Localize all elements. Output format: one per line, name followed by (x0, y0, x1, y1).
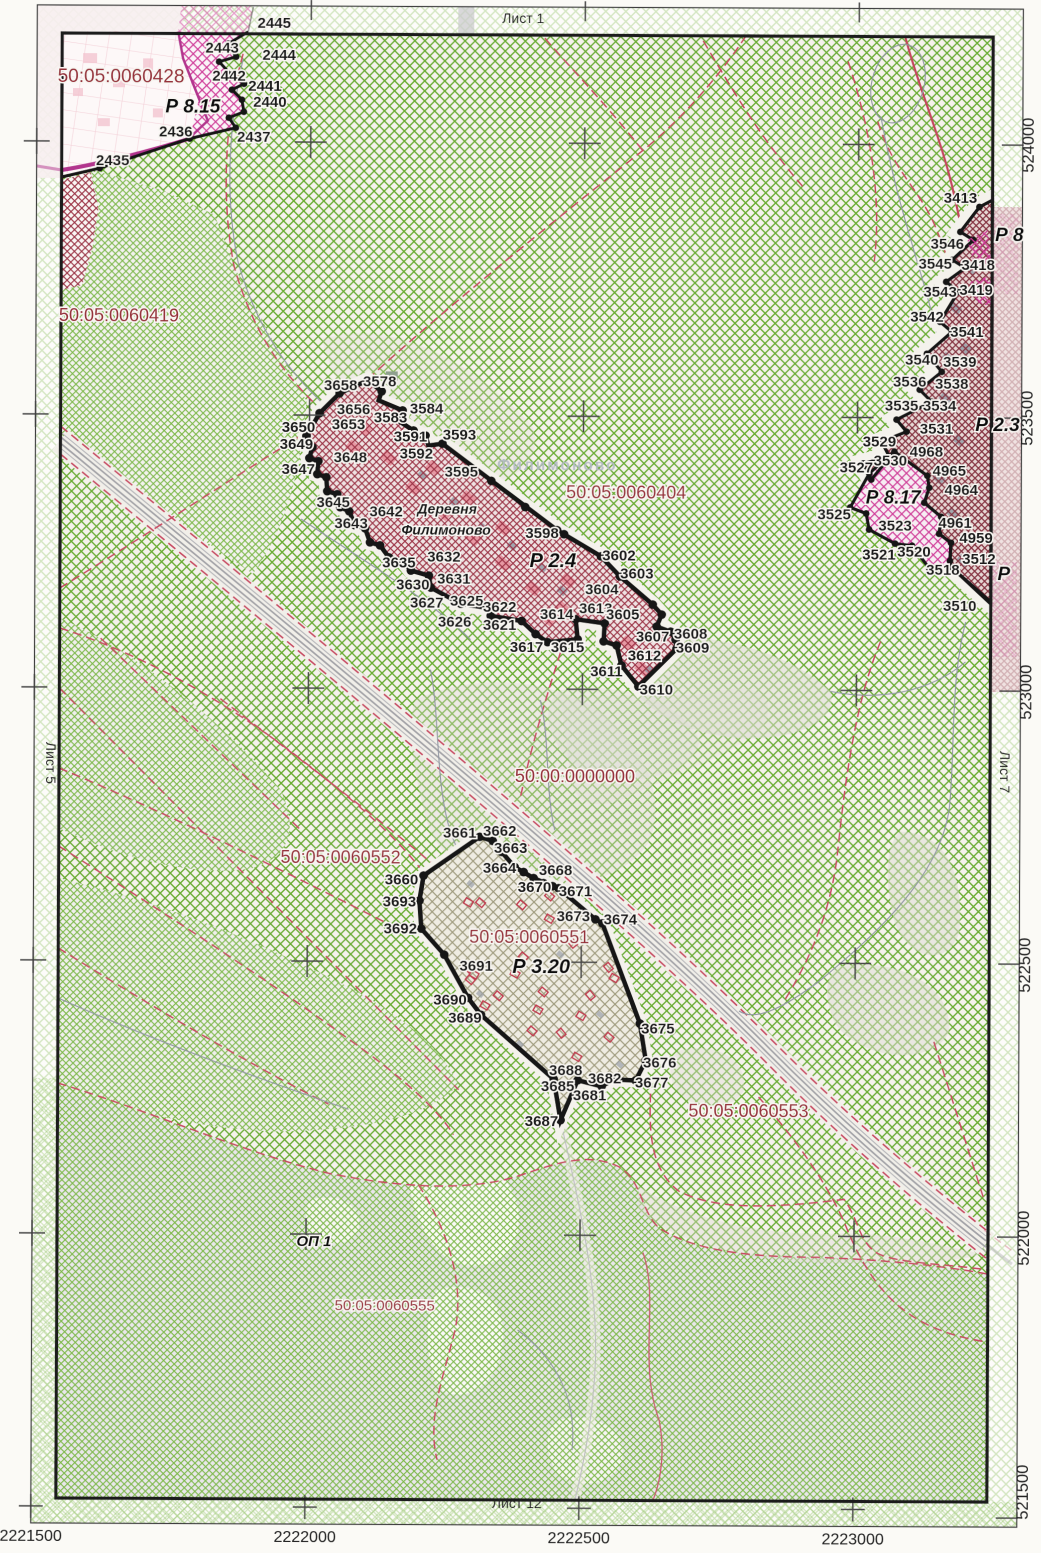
svg-text:3529: 3529 (863, 433, 896, 450)
svg-text:Р: Р (997, 564, 1010, 585)
svg-text:Лист 12: Лист 12 (492, 1495, 542, 1511)
svg-text:Лист 5: Лист 5 (43, 742, 59, 784)
svg-text:Лист 1: Лист 1 (502, 10, 544, 26)
svg-text:Лист 7: Лист 7 (997, 751, 1013, 793)
svg-text:3607: 3607 (636, 629, 669, 646)
svg-text:3681: 3681 (573, 1087, 606, 1104)
svg-text:522500: 522500 (1016, 938, 1034, 993)
svg-text:3668: 3668 (539, 862, 572, 879)
svg-text:50:00:0000000: 50:00:0000000 (515, 766, 635, 787)
svg-text:3615: 3615 (551, 639, 584, 656)
svg-text:3617: 3617 (510, 639, 543, 656)
svg-text:3690: 3690 (433, 992, 466, 1009)
svg-text:3648: 3648 (334, 449, 367, 466)
svg-text:3670: 3670 (518, 879, 551, 896)
svg-text:Филимоново: Филимоново (497, 457, 618, 475)
svg-text:3604: 3604 (585, 581, 619, 598)
svg-text:3541: 3541 (950, 324, 983, 341)
svg-text:3631: 3631 (437, 571, 470, 588)
svg-text:3632: 3632 (427, 549, 460, 566)
svg-text:3583: 3583 (374, 409, 407, 426)
svg-text:3662: 3662 (483, 823, 516, 840)
svg-text:2441: 2441 (248, 78, 281, 95)
svg-text:3534: 3534 (923, 398, 957, 415)
svg-text:3593: 3593 (443, 427, 476, 444)
svg-text:2435: 2435 (96, 152, 129, 169)
svg-text:3518: 3518 (926, 562, 959, 579)
svg-text:4965: 4965 (933, 463, 966, 480)
svg-text:3647: 3647 (282, 461, 315, 478)
svg-text:3592: 3592 (400, 445, 433, 462)
svg-text:4964: 4964 (945, 482, 979, 499)
svg-text:Р 2.4: Р 2.4 (530, 550, 577, 572)
svg-text:2445: 2445 (258, 15, 291, 32)
svg-text:3625: 3625 (450, 593, 483, 610)
svg-text:2440: 2440 (253, 94, 286, 111)
svg-text:3512: 3512 (962, 551, 995, 568)
svg-text:3591: 3591 (394, 428, 427, 445)
svg-text:3664: 3664 (483, 860, 517, 877)
svg-text:3687: 3687 (525, 1113, 558, 1130)
svg-text:3520: 3520 (897, 544, 930, 561)
svg-text:2437: 2437 (237, 129, 270, 146)
svg-text:3674: 3674 (604, 911, 638, 928)
svg-text:3635: 3635 (382, 554, 415, 571)
svg-text:3661: 3661 (443, 825, 476, 842)
svg-text:3413: 3413 (944, 190, 977, 207)
svg-text:3677: 3677 (635, 1075, 668, 1092)
svg-text:3689: 3689 (448, 1010, 481, 1027)
svg-text:3688: 3688 (549, 1062, 582, 1079)
svg-text:3630: 3630 (396, 576, 429, 593)
svg-text:2444: 2444 (262, 47, 296, 64)
svg-text:Филимоново: Филимоново (401, 521, 491, 537)
svg-text:3610: 3610 (640, 682, 673, 699)
svg-text:3675: 3675 (641, 1021, 674, 1038)
svg-text:3584: 3584 (410, 401, 444, 418)
svg-text:2221500: 2221500 (0, 1528, 62, 1545)
svg-text:50:05:0060552: 50:05:0060552 (281, 847, 401, 868)
svg-text:3650: 3650 (282, 419, 315, 436)
svg-text:522000: 522000 (1015, 1211, 1033, 1266)
svg-text:3539: 3539 (943, 354, 976, 371)
svg-text:3545: 3545 (919, 256, 952, 273)
svg-text:521500: 521500 (1014, 1465, 1032, 1520)
svg-text:50:05:0060551: 50:05:0060551 (469, 927, 589, 948)
svg-text:Деревня: Деревня (416, 501, 476, 517)
svg-text:524000: 524000 (1020, 118, 1038, 173)
svg-text:Р 2.3: Р 2.3 (975, 415, 1020, 436)
svg-text:3546: 3546 (931, 236, 964, 253)
svg-text:3530: 3530 (874, 453, 907, 470)
svg-text:Р 8.15: Р 8.15 (165, 96, 220, 117)
svg-text:3643: 3643 (334, 515, 367, 532)
svg-text:523000: 523000 (1017, 665, 1035, 720)
svg-text:2443: 2443 (205, 40, 238, 57)
svg-text:3660: 3660 (385, 871, 418, 888)
svg-text:3540: 3540 (905, 352, 938, 369)
svg-text:3542: 3542 (910, 309, 943, 326)
svg-text:50:05:0060428: 50:05:0060428 (58, 66, 185, 88)
svg-text:523500: 523500 (1018, 391, 1036, 446)
svg-text:3691: 3691 (459, 958, 492, 975)
svg-text:50:05:0060404: 50:05:0060404 (566, 482, 686, 503)
svg-text:3622: 3622 (483, 599, 516, 616)
svg-text:3658: 3658 (324, 377, 357, 394)
svg-text:3595: 3595 (445, 464, 478, 481)
svg-text:3693: 3693 (383, 893, 416, 910)
svg-text:3685: 3685 (541, 1078, 574, 1095)
svg-text:3649: 3649 (280, 436, 313, 453)
svg-text:50:05:0060419: 50:05:0060419 (59, 305, 179, 326)
svg-text:3605: 3605 (606, 606, 639, 623)
svg-text:3609: 3609 (676, 640, 709, 657)
svg-text:2442: 2442 (212, 68, 245, 85)
svg-text:3621: 3621 (483, 617, 516, 634)
svg-text:3671: 3671 (559, 883, 592, 900)
svg-text:3663: 3663 (494, 840, 527, 857)
svg-text:3536: 3536 (893, 374, 926, 391)
svg-text:ОП 1: ОП 1 (296, 1233, 331, 1250)
svg-text:3538: 3538 (935, 376, 968, 393)
svg-text:3531: 3531 (920, 421, 953, 438)
svg-text:2222000: 2222000 (273, 1529, 335, 1546)
svg-text:4968: 4968 (910, 444, 943, 461)
svg-text:3653: 3653 (332, 416, 365, 433)
svg-text:3626: 3626 (438, 614, 471, 631)
svg-text:50:05:0060553: 50:05:0060553 (688, 1101, 808, 1122)
svg-text:3611: 3611 (590, 663, 623, 680)
svg-text:3527: 3527 (840, 459, 873, 476)
svg-text:3645: 3645 (316, 494, 349, 511)
svg-text:3692: 3692 (384, 920, 417, 937)
svg-text:3419: 3419 (959, 282, 992, 299)
svg-text:3682: 3682 (588, 1070, 621, 1087)
svg-text:3627: 3627 (410, 595, 443, 612)
svg-text:3603: 3603 (620, 565, 653, 582)
svg-text:Р 8: Р 8 (995, 225, 1024, 246)
svg-text:2436: 2436 (159, 123, 192, 140)
svg-text:3521: 3521 (862, 546, 895, 563)
svg-text:2222500: 2222500 (547, 1530, 609, 1547)
svg-text:Р 3.20: Р 3.20 (512, 956, 570, 978)
svg-text:3510: 3510 (943, 598, 976, 615)
svg-text:4959: 4959 (959, 530, 992, 547)
svg-text:50:05:0060555: 50:05:0060555 (335, 1297, 435, 1314)
svg-text:3602: 3602 (602, 547, 635, 564)
svg-text:3612: 3612 (628, 647, 661, 664)
svg-text:3543: 3543 (923, 284, 956, 301)
svg-text:3676: 3676 (643, 1055, 676, 1072)
svg-text:3535: 3535 (885, 398, 918, 415)
svg-text:3614: 3614 (540, 606, 574, 623)
svg-text:3578: 3578 (363, 373, 396, 390)
svg-text:3642: 3642 (369, 503, 402, 520)
svg-text:2223000: 2223000 (821, 1531, 883, 1548)
svg-text:3598: 3598 (525, 525, 558, 542)
svg-text:3418: 3418 (962, 257, 995, 274)
svg-text:3523: 3523 (878, 518, 911, 535)
svg-text:Р 8.17: Р 8.17 (866, 488, 922, 509)
svg-text:3525: 3525 (817, 506, 850, 523)
svg-text:3673: 3673 (557, 908, 590, 925)
